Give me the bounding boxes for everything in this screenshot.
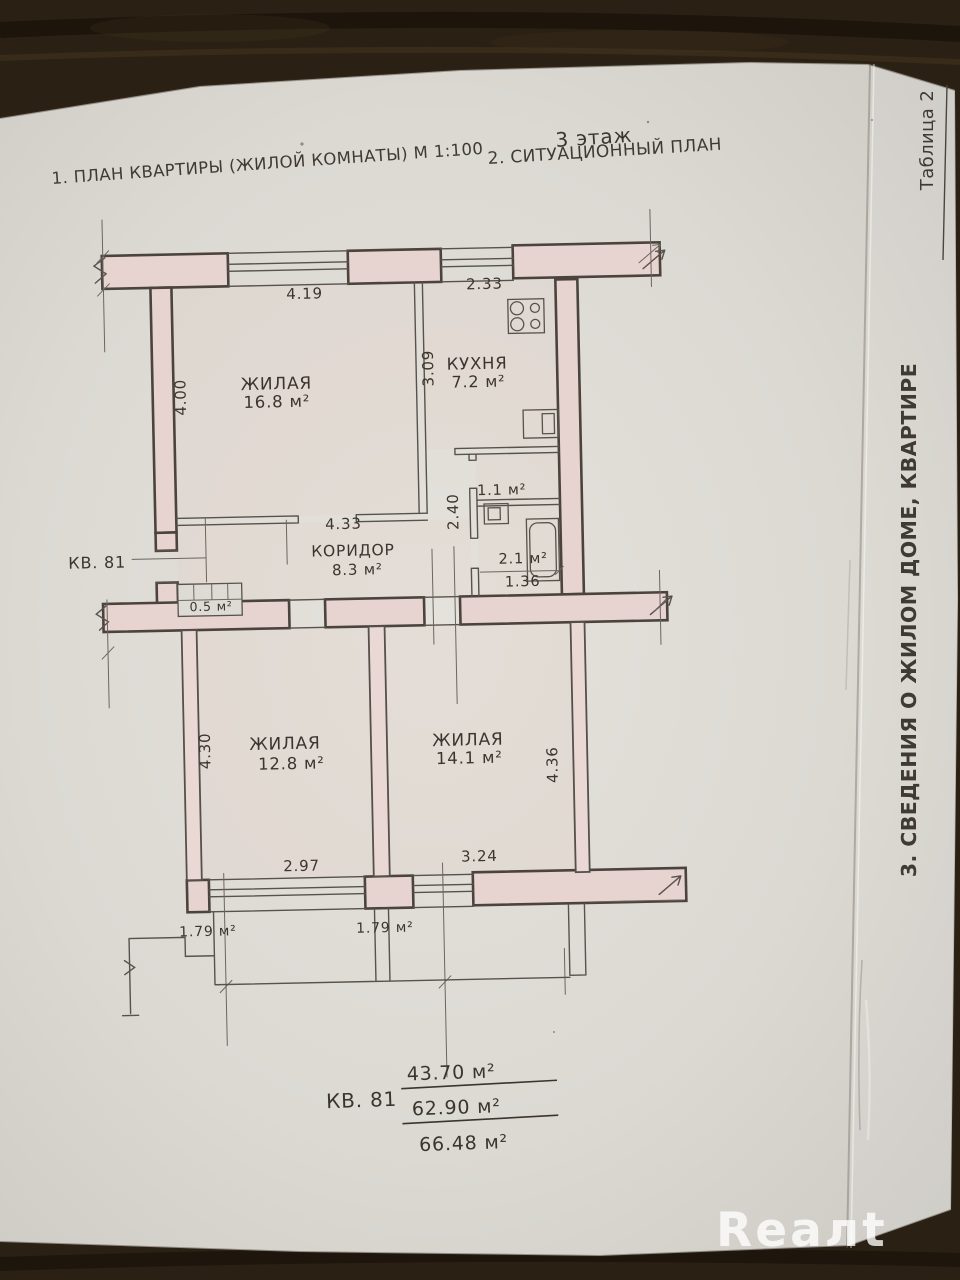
apartment-number: КВ. 81 bbox=[68, 553, 126, 573]
room-area-corridor: 8.3 м² bbox=[332, 560, 383, 579]
dim-4-30: 4.30 bbox=[196, 732, 215, 769]
totals-living-area: 43.70 м² bbox=[406, 1060, 496, 1085]
room-name-corridor: КОРИДОР bbox=[311, 541, 395, 561]
dim-3-09: 3.09 bbox=[419, 350, 438, 387]
totals-total-with-balconies: 66.48 м² bbox=[419, 1131, 509, 1156]
room-area-bathroom: 2.1 м² bbox=[498, 551, 548, 568]
totals-apartment-number: КВ. 81 bbox=[326, 1087, 398, 1113]
room-area-living-2: 12.8 м² bbox=[258, 753, 325, 773]
dim-4-33: 4.33 bbox=[325, 515, 362, 534]
side-section-title: 3. СВЕДЕНИЯ О ЖИЛОМ ДОМЕ, КВАРТИРЕ bbox=[897, 363, 921, 877]
room-name-living-2: ЖИЛАЯ bbox=[249, 733, 321, 754]
room-area-living-1: 16.8 м² bbox=[243, 392, 310, 412]
dim-2-97: 2.97 bbox=[283, 857, 320, 876]
dim-4-36: 4.36 bbox=[543, 746, 562, 783]
dim-2-33: 2.33 bbox=[466, 275, 503, 294]
room-area-kitchen: 7.2 м² bbox=[451, 372, 505, 392]
dim-4-00: 4.00 bbox=[171, 379, 190, 416]
dim-2-40: 2.40 bbox=[444, 493, 463, 530]
photo-of-floor-plan-document: 1. ПЛАН КВАРТИРЫ (ЖИЛОЙ КОМНАТЫ) М 1:100… bbox=[0, 0, 960, 1280]
room-area-closet: 0.5 м² bbox=[189, 598, 232, 614]
totals-total-area: 62.90 м² bbox=[412, 1095, 502, 1120]
dim-1-36: 1.36 bbox=[505, 574, 541, 591]
realt-watermark: Reaлt bbox=[716, 1203, 888, 1258]
room-area-living-3: 14.1 м² bbox=[436, 748, 503, 768]
table-label: Таблица 2 bbox=[917, 90, 938, 191]
dim-3-24: 3.24 bbox=[461, 847, 498, 866]
balcony-2-area: 1.79 м² bbox=[356, 920, 414, 937]
dim-4-19: 4.19 bbox=[286, 284, 323, 303]
balcony-1-area: 1.79 м² bbox=[179, 923, 237, 940]
room-area-wc: 1.1 м² bbox=[477, 482, 527, 499]
